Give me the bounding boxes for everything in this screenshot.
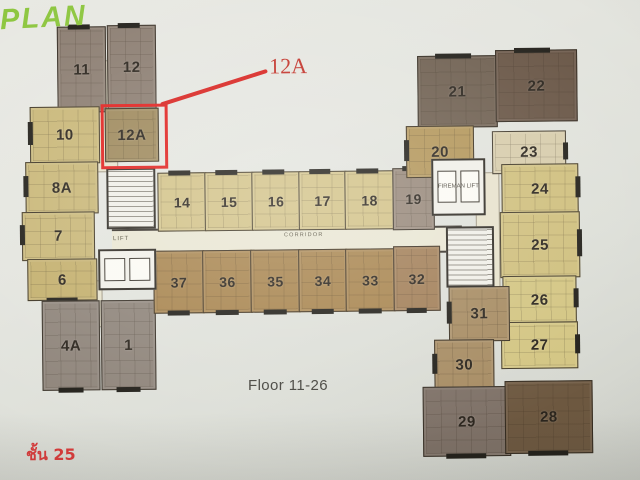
unit-36: 36: [202, 250, 253, 314]
unit-label-21: 21: [449, 83, 467, 100]
floor-plan-photo: CORRIDOR LIFT 12A 11121012A8A764A1141516…: [0, 0, 640, 480]
unit-26: 26: [502, 275, 576, 324]
unit-14: 14: [157, 172, 207, 232]
unit-label-27: 27: [531, 337, 549, 354]
unit-label-33: 33: [362, 272, 379, 288]
unit-label-28: 28: [540, 409, 558, 426]
unit-32: 32: [393, 246, 441, 311]
balcony-mark: [435, 53, 471, 58]
unit-29: 29: [423, 386, 512, 457]
balcony-mark: [118, 23, 140, 28]
unit-label-19: 19: [405, 191, 422, 207]
unit-31: 31: [448, 286, 510, 342]
unit-label-36: 36: [219, 273, 236, 289]
unit-22: 22: [495, 49, 578, 122]
balcony-mark: [28, 122, 33, 145]
unit-37: 37: [153, 250, 205, 314]
unit-27: 27: [501, 321, 578, 369]
unit-label-15: 15: [221, 193, 238, 209]
unit-label-26: 26: [531, 291, 549, 308]
unit-label-4A: 4A: [61, 337, 81, 354]
balcony-mark: [23, 176, 28, 197]
unit-24: 24: [501, 163, 579, 214]
floor-range-caption: Floor 11-26: [248, 377, 328, 394]
stairwell-core: [106, 168, 156, 230]
balcony-mark: [563, 142, 568, 159]
balcony-mark: [447, 301, 452, 323]
unit-10: 10: [30, 106, 101, 164]
balcony-mark: [432, 354, 437, 375]
balcony-mark: [263, 169, 285, 174]
balcony-mark: [406, 308, 427, 313]
unit-28: 28: [504, 380, 593, 454]
unit-label-14: 14: [174, 194, 191, 210]
balcony-mark: [312, 309, 334, 314]
annotation-label-12A: 12A: [269, 53, 307, 79]
plan-logo: PLAN: [0, 0, 88, 37]
unit-35: 35: [250, 249, 301, 313]
unit-label-37: 37: [171, 274, 188, 290]
balcony-mark: [356, 168, 378, 173]
unit-30: 30: [434, 339, 495, 391]
balcony-mark: [309, 169, 330, 174]
balcony-mark: [20, 225, 25, 245]
unit-label-6: 6: [58, 271, 67, 288]
lift-core: [98, 249, 156, 291]
balcony-mark: [577, 229, 582, 256]
balcony-mark: [359, 308, 381, 313]
balcony-mark: [116, 387, 140, 392]
unit-4A: 4A: [42, 300, 101, 391]
floor-plan: CORRIDOR LIFT 12A 11121012A8A764A1141516…: [0, 0, 640, 480]
unit-34: 34: [298, 249, 348, 313]
balcony-mark: [529, 450, 569, 455]
unit-label-18: 18: [361, 192, 378, 208]
unit-21: 21: [417, 55, 498, 128]
unit-16: 16: [251, 171, 301, 231]
unit-8A: 8A: [25, 161, 99, 214]
balcony-mark: [216, 170, 238, 175]
balcony-mark: [575, 177, 580, 197]
balcony-mark: [574, 288, 579, 307]
unit-label-30: 30: [455, 356, 473, 373]
unit-11: 11: [57, 26, 107, 113]
unit-label-17: 17: [314, 192, 331, 208]
stairwell-core: [446, 226, 495, 287]
highlight-box-unit-12A: [101, 104, 169, 170]
unit-label-8A: 8A: [52, 179, 72, 196]
unit-label-22: 22: [527, 77, 545, 94]
floor-number-thai-caption: ชั้น 25: [26, 443, 76, 468]
balcony-mark: [447, 453, 487, 458]
balcony-mark: [167, 310, 190, 315]
unit-6: 6: [27, 258, 97, 301]
balcony-mark: [169, 170, 191, 175]
unit-label-34: 34: [315, 272, 332, 288]
unit-label-25: 25: [531, 236, 549, 253]
lift-label: LIFT: [113, 236, 129, 242]
unit-17: 17: [298, 171, 347, 230]
core-label: FIREMAN LIFT: [436, 184, 481, 191]
unit-label-7: 7: [54, 228, 63, 245]
unit-1: 1: [101, 300, 157, 391]
unit-7: 7: [22, 211, 96, 261]
unit-33: 33: [345, 248, 396, 312]
balcony-mark: [404, 140, 409, 161]
unit-label-29: 29: [458, 413, 476, 430]
balcony-mark: [575, 334, 580, 353]
unit-label-16: 16: [268, 193, 285, 209]
unit-12: 12: [107, 25, 157, 111]
unit-label-35: 35: [267, 273, 284, 289]
unit-label-32: 32: [409, 270, 426, 286]
unit-label-24: 24: [531, 180, 549, 197]
corridor-label: CORRIDOR: [284, 232, 324, 238]
unit-label-31: 31: [470, 305, 488, 322]
lift-core: FIREMAN LIFT: [431, 158, 486, 216]
unit-label-1: 1: [124, 336, 133, 353]
unit-label-23: 23: [520, 144, 538, 161]
balcony-mark: [216, 310, 238, 315]
unit-18: 18: [344, 170, 395, 230]
unit-label-11: 11: [73, 61, 90, 78]
balcony-mark: [264, 309, 286, 314]
annotation-arrow-line: [160, 69, 268, 107]
unit-25: 25: [500, 211, 581, 278]
unit-label-10: 10: [56, 127, 74, 144]
unit-15: 15: [204, 172, 254, 232]
unit-label-12: 12: [123, 59, 141, 76]
balcony-mark: [514, 48, 551, 53]
balcony-mark: [58, 387, 84, 392]
